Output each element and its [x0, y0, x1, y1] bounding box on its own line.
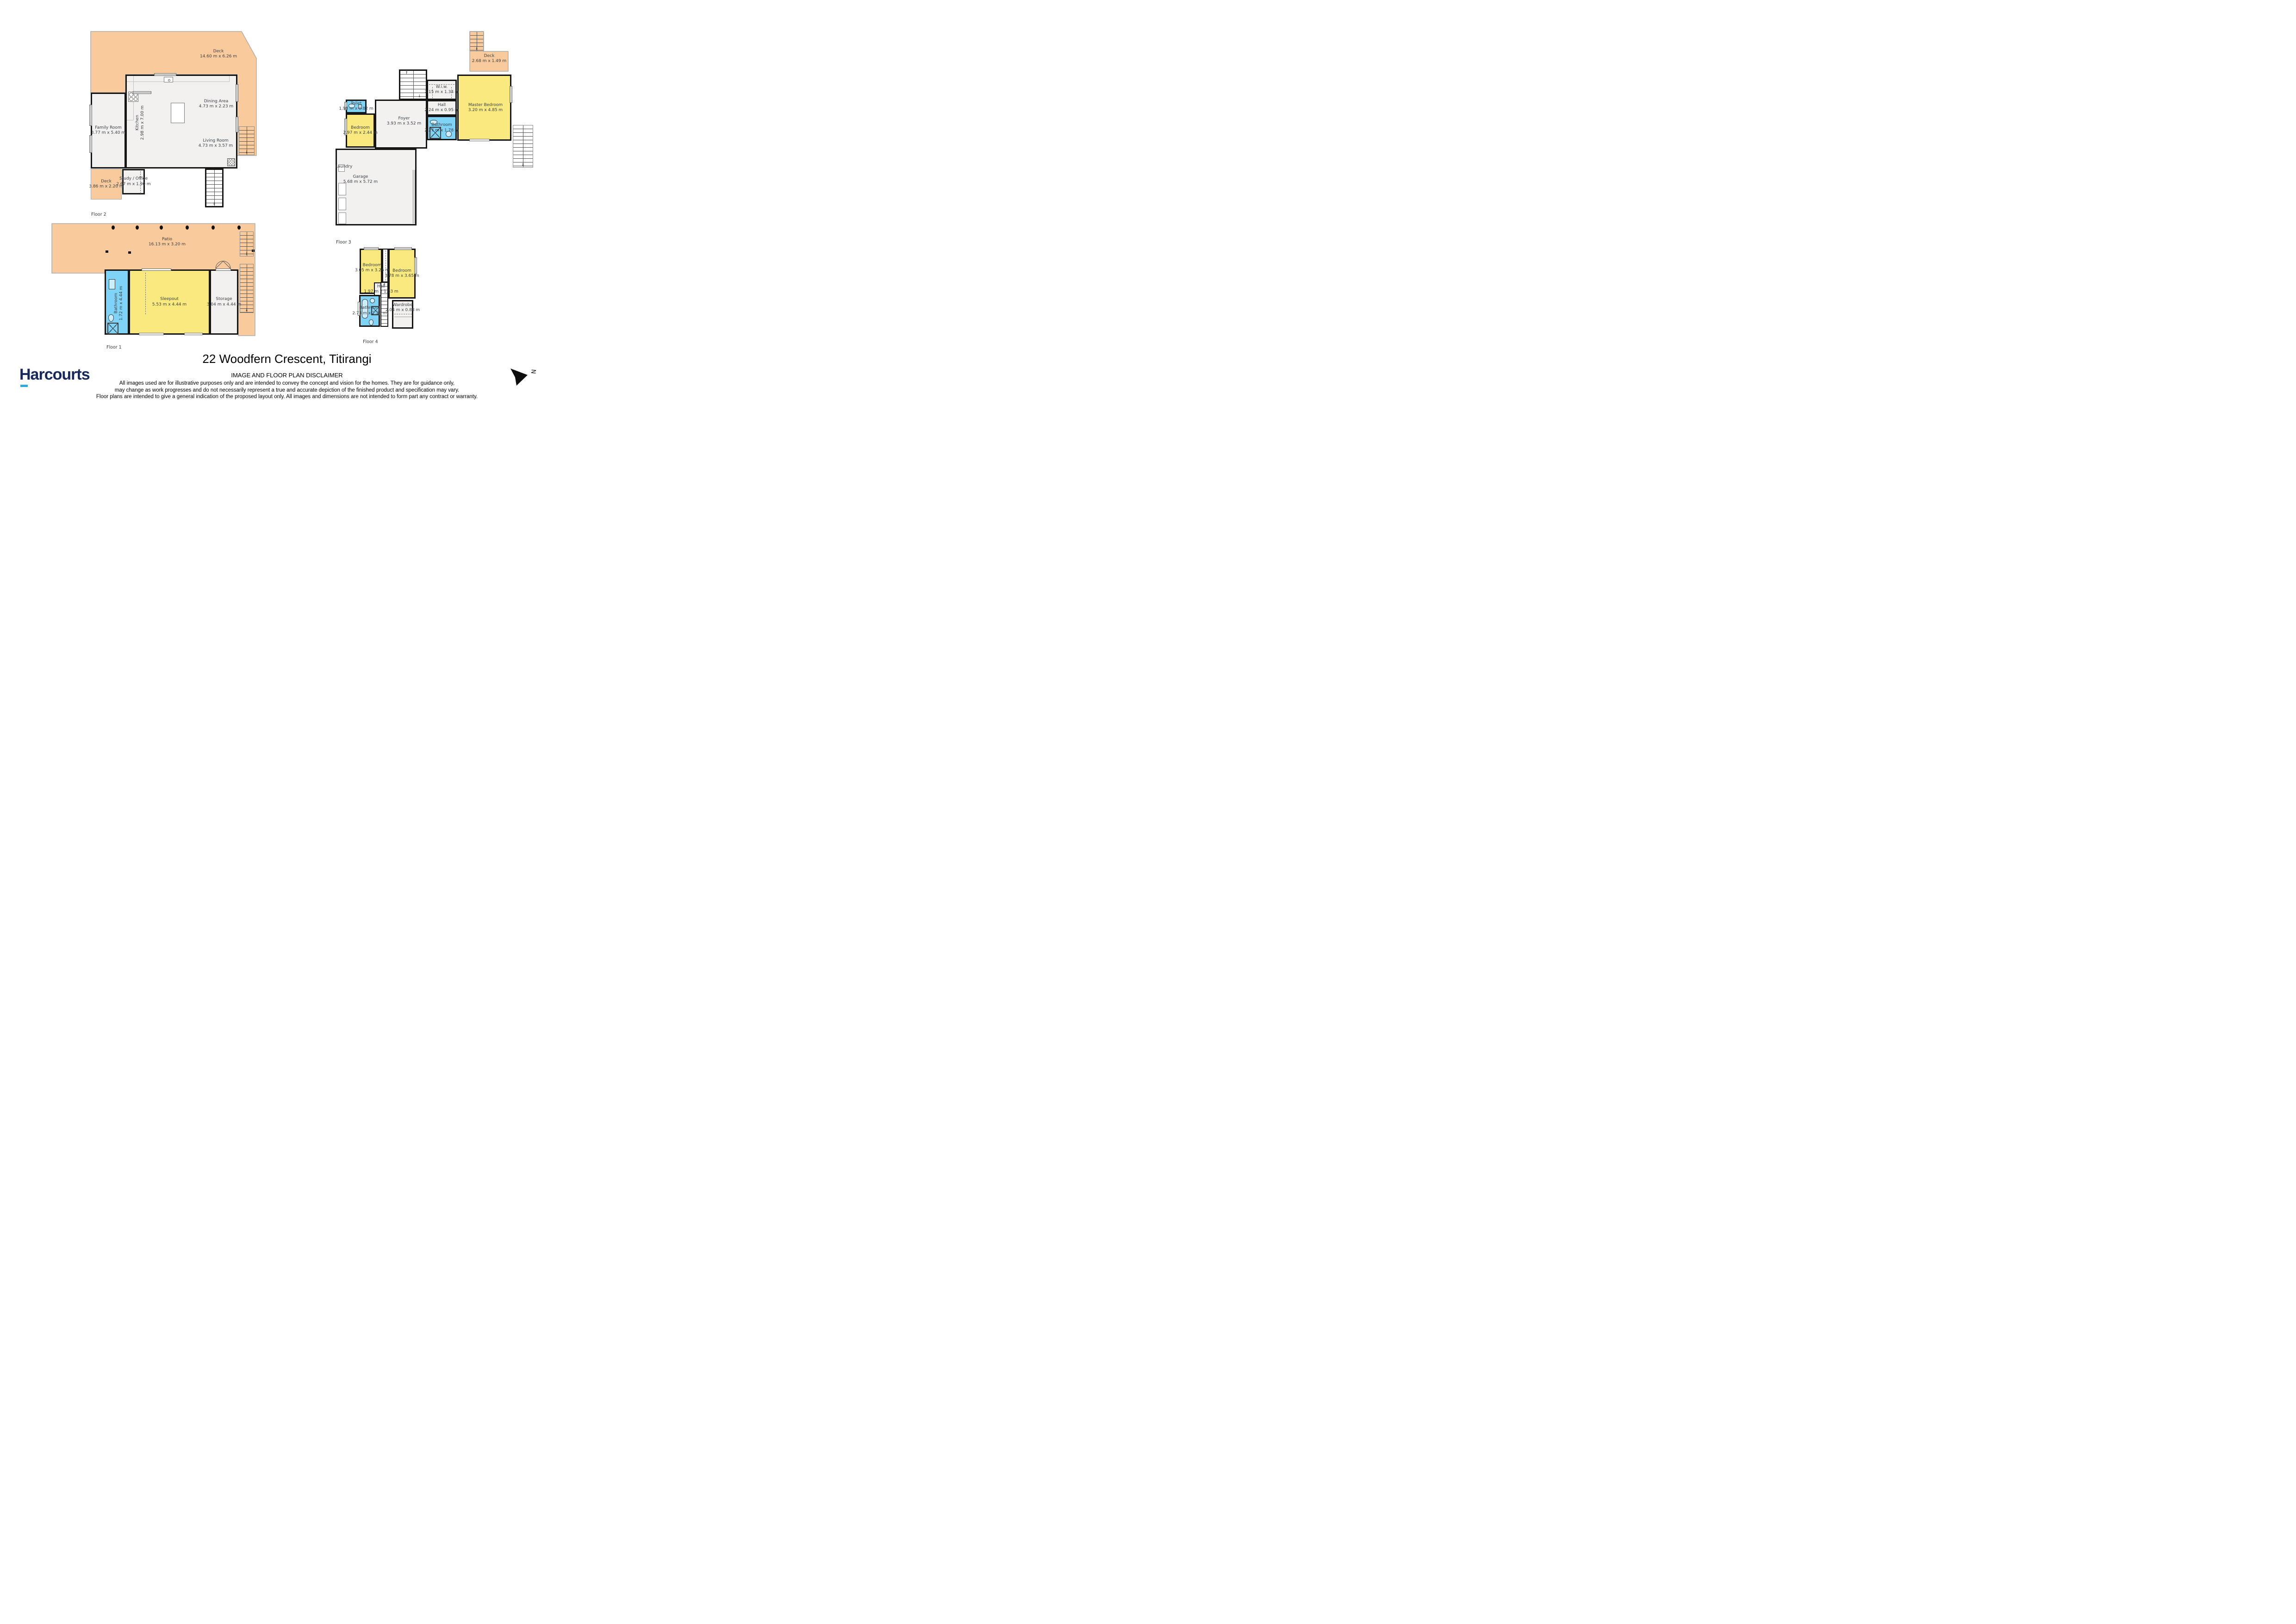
floor4-stairs: ↑ [380, 282, 388, 327]
bathtub-icon [362, 299, 368, 319]
wardrobe-side-dashed [432, 87, 433, 98]
room-dims: 3.78 m x 3.65 m [385, 274, 419, 279]
room-dims: 5.68 m x 5.72 m [343, 180, 378, 185]
wardrobe-side-dashed [451, 87, 452, 98]
sink-icon [446, 131, 452, 137]
window [133, 91, 151, 94]
sink-icon [358, 105, 362, 109]
room-floor1-sleepout: Sleepout 5.53 m x 4.44 m [129, 269, 210, 335]
room-name: Bedroom [351, 125, 370, 131]
kitchen-counter-top [127, 76, 230, 82]
stairs-down-arrow-icon: ↓ [240, 308, 253, 312]
window [139, 333, 164, 335]
room-name: Family Room [95, 125, 121, 131]
room-dims: 2.97 m x 2.44 m [343, 131, 377, 136]
disclaimer-line: Floor plans are intended to give a gener… [0, 394, 574, 400]
floor4-bedroom-right-label: Bedroom 3.78 m x 3.65 m [390, 250, 414, 297]
room-dims: 3.93 m x 3.52 m [387, 121, 421, 126]
shower-icon [429, 127, 441, 139]
floor3-master-label: Master Bedroom 3.20 m x 4.85 m [458, 103, 513, 113]
room-name: Hall [438, 103, 446, 108]
room-floor3-wiw: W.i.w. 2.15 m x 1.34 m [427, 80, 457, 100]
stairs-down-arrow-icon: ↓ [206, 202, 222, 206]
sink-icon [109, 279, 115, 289]
laundry-appliance-icon [338, 164, 345, 172]
room-floor4-wardrobe: Wardrobe 2.04 m x 0.88 m [392, 300, 413, 329]
stairs-down-arrow-icon: ↓ [240, 252, 253, 256]
garage-shelf [338, 212, 346, 224]
floor1-storage-label: Storage 3.04 m x 4.44 m [211, 271, 237, 333]
room-name: Kitchen [135, 115, 140, 131]
room-floor2-kitchen-dining-living: Kitchen 2.98 m x 7.00 m Dining Area 4.73… [125, 75, 237, 169]
floor1-sleepout-label: Sleepout 5.53 m x 4.44 m [130, 271, 209, 333]
sleepout-dashed-line [145, 273, 146, 314]
floor2-deck-stairs: ↓ [239, 126, 255, 155]
harcourts-logo: Harcourts [19, 366, 90, 384]
shower-icon [107, 323, 118, 334]
patio-post [212, 225, 215, 230]
floor2-label: Floor 2 [91, 212, 106, 217]
floor-plan-page: Deck 14.60 m x 6.26 m ↓ Family Room 3.77… [0, 0, 574, 406]
stair-rail [214, 170, 215, 206]
toilet-icon [369, 319, 373, 325]
room-name: Master Bedroom [468, 103, 503, 108]
room-floor1-storage: Storage 3.04 m x 4.44 m [210, 269, 238, 335]
wardrobe-rail-dashed [429, 84, 454, 85]
room-name: Sleepout [160, 297, 179, 302]
shower-icon [371, 306, 380, 315]
room-floor4-bedroom-right: Bedroom 3.78 m x 3.65 m [388, 249, 416, 299]
page-title: 22 Woodfern Crescent, Titirangi [0, 352, 574, 366]
room-dims: 5.53 m x 4.44 m [152, 302, 187, 307]
room-floor3-bedroom: Bedroom 2.97 m x 2.44 m [346, 113, 375, 148]
harcourts-wordmark: Harcourts [19, 366, 90, 384]
patio-column [128, 251, 131, 254]
floor3-deck-label: Deck 2.68 m x 1.49 m [468, 54, 510, 64]
window [344, 102, 347, 110]
stairs-down-arrow-icon: ↓ [470, 47, 483, 50]
patio-post [136, 225, 139, 230]
patio-post [186, 225, 189, 230]
stairs-up-arrow-icon: ↑ [400, 71, 413, 75]
room-dims: 3.77 m x 5.40 m [91, 131, 125, 136]
study-dashed-line [140, 171, 141, 194]
corridor-dashed-line [386, 250, 386, 281]
deck-patio-shapes [0, 0, 574, 406]
room-name: Deck [484, 54, 495, 59]
storage-double-door-arcs [216, 261, 230, 269]
window [358, 302, 360, 316]
fireplace-icon [227, 158, 235, 166]
sliding-door [142, 269, 171, 271]
patio-column [106, 250, 108, 253]
floor3-label: Floor 3 [336, 240, 351, 245]
floor1-patio-stairs-lower: ↓ [240, 264, 254, 313]
sink-icon [370, 298, 375, 303]
toilet-icon [430, 120, 437, 125]
room-name: Bedroom [363, 263, 382, 268]
stair-rail [247, 264, 247, 312]
floor2-deck-large-label: Deck 14.60 m x 6.26 m [191, 49, 246, 60]
window [344, 119, 347, 135]
room-dims: 2.04 m x 0.88 m [386, 308, 420, 313]
wardrobe-dashed-line [394, 314, 412, 314]
room-name: Living Room [203, 138, 228, 144]
garage-shelf [338, 183, 346, 195]
floor1-patio-label: Patio 16.13 m x 3.20 m [139, 237, 195, 248]
disclaimer-line: may change as work progresses and do not… [0, 387, 574, 394]
stairs-down-arrow-icon: ↓ [239, 150, 254, 154]
room-name: Bathroom [114, 293, 119, 313]
floor4-label: Floor 4 [363, 339, 378, 344]
window [364, 247, 379, 250]
floor3-bedroom-label: Bedroom 2.97 m x 2.44 m [347, 115, 373, 146]
window [184, 333, 203, 335]
floor4-stair-corridor [382, 249, 388, 282]
floor2-family-label: Family Room 3.77 m x 5.40 m [92, 94, 124, 167]
room-floor3-master: Master Bedroom 3.20 m x 4.85 m [457, 75, 511, 141]
room-floor3-bathroom: Bathroom 2.27 m x 1.78 m [427, 116, 457, 140]
door-opening [216, 269, 231, 271]
window [236, 117, 238, 132]
room-name: Patio [162, 237, 172, 242]
stairs-up-arrow-icon: ↑ [381, 283, 387, 287]
floor3-stairwell: ↑ ↓ [399, 69, 427, 100]
room-dims: 2.68 m x 1.49 m [472, 59, 506, 64]
window [510, 86, 512, 103]
harcourts-logo-bar [20, 385, 28, 387]
room-floor2-deck-small: Deck 3.86 m x 2.20 m [91, 169, 122, 200]
north-arrow-icon [509, 367, 529, 387]
patio-post [160, 225, 163, 230]
room-name: W.i.w. [436, 85, 448, 90]
floor2-living-label: Living Room 4.73 m x 3.57 m [188, 138, 243, 149]
room-dims: 16.13 m x 3.20 m [149, 242, 186, 247]
room-name: Garage [353, 175, 368, 180]
room-name: Bedroom [392, 269, 411, 274]
floor2-internal-stairs: ↓ [205, 169, 224, 207]
garage-door [413, 170, 415, 224]
floor1-label: Floor 1 [106, 345, 122, 350]
floor4-wardrobe-label: Wardrobe 2.04 m x 0.88 m [393, 303, 412, 313]
stairs-down-arrow-icon: ↓ [413, 94, 426, 98]
room-dims: 3.04 m x 4.44 m [207, 302, 241, 307]
room-floor2-family: Family Room 3.77 m x 5.40 m [91, 93, 126, 169]
kitchen-sink-icon [164, 77, 173, 82]
room-name: Wardrobe [392, 303, 412, 308]
room-name: Foyer [398, 116, 410, 121]
north-compass: N [509, 367, 541, 387]
toilet-icon [108, 314, 114, 322]
floor1-patio-stairs-upper: ↓ [240, 231, 254, 256]
garage-shelf [338, 198, 346, 210]
window [394, 247, 412, 250]
room-dims: 14.60 m x 6.26 m [200, 54, 237, 59]
room-dims: 4.73 m x 3.57 m [199, 144, 233, 149]
room-dims: 2.24 m x 0.95 m [424, 108, 459, 113]
floor3-stairwell-treads: ↑ ↓ [400, 71, 426, 99]
window [469, 139, 490, 141]
window [154, 73, 176, 76]
room-dims: 2.15 m x 1.34 m [424, 90, 459, 95]
window [236, 84, 238, 102]
kitchen-island [171, 103, 185, 123]
room-floor1-bathroom: Bathroom 1.72 m x 4.44 m [105, 269, 129, 335]
room-dims: 1.72 m x 4.44 m [119, 286, 124, 320]
window [89, 135, 92, 153]
stair-rail [523, 125, 523, 167]
window [414, 257, 417, 274]
room-floor3-hall: Hall 2.24 m x 0.95 m [427, 100, 457, 116]
toilet-icon [348, 104, 355, 108]
room-name: Study / Office [119, 176, 148, 181]
room-dims: 4.73 m x 2.23 m [199, 104, 233, 109]
room-floor2-study: Study / Office 2.67 m x 1.90 m [122, 169, 145, 194]
room-dims: 3.20 m x 4.85 m [468, 108, 503, 113]
window [89, 105, 92, 126]
floor2-kitchen-label: Kitchen 2.98 m x 7.00 m [134, 95, 146, 150]
room-floor3-garage: Laundry Garage 5.68 m x 5.72 m [336, 149, 417, 225]
floor3-foyer-label: Foyer 3.93 m x 3.52 m [376, 116, 432, 127]
floor3-hall-label: Hall 2.24 m x 0.95 m [428, 101, 455, 114]
room-name: Deck [213, 49, 224, 54]
floor2-deck-small-label: Deck 3.86 m x 2.20 m [91, 169, 121, 199]
stairs-down-arrow-icon: ↓ [513, 163, 533, 167]
wardrobe-shelf-line [394, 317, 412, 317]
patio-post [112, 225, 115, 230]
north-label: N [529, 369, 537, 374]
patio-post [237, 225, 241, 230]
room-floor3-foyer: Foyer 3.93 m x 3.52 m [375, 100, 427, 149]
floor3-external-stairs: ↓ [513, 125, 533, 168]
room-name: Dining Area [204, 99, 229, 104]
room-dims: 3.86 m x 2.20 m [89, 184, 123, 189]
floor3-deck-stairs: ↓ [470, 31, 484, 51]
room-floor3-toilet: Toilet 1.98 m x 0.82 m [346, 100, 367, 113]
room-name: Deck [101, 179, 112, 184]
room-name: Storage [216, 297, 232, 302]
room-floor4-bathroom: Bathroom 2.73 m x 2.28 m [359, 295, 380, 327]
room-dims: 2.98 m x 7.00 m [140, 106, 145, 140]
